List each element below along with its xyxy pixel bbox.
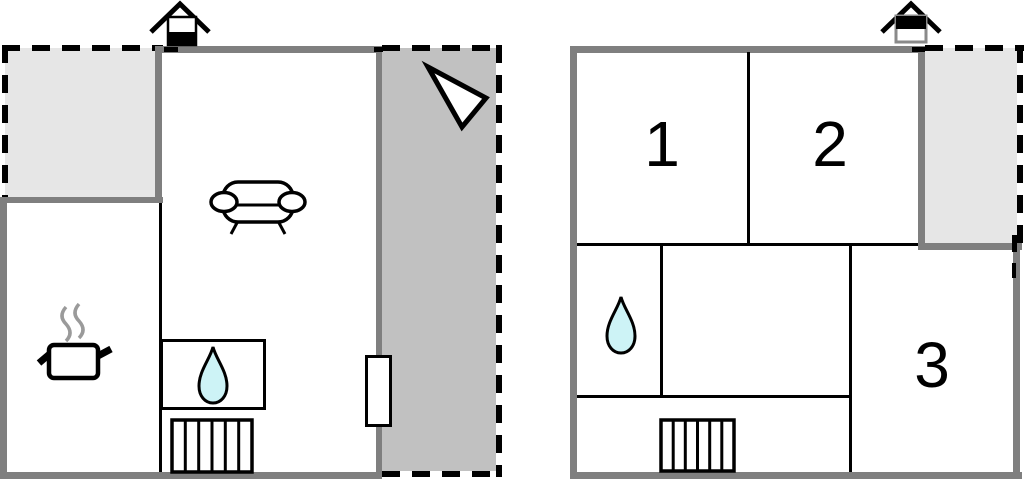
wall-under-terrace	[918, 243, 1022, 250]
dashed-border-top-left	[2, 45, 163, 51]
room-label-3: 3	[852, 333, 1012, 397]
wall-left	[570, 46, 577, 479]
sofa-armrest-left	[211, 193, 237, 212]
north-arrow-icon	[418, 58, 490, 134]
terrace-area-right-plan	[925, 48, 1017, 244]
dashed-border-right	[1017, 45, 1023, 251]
chimney-body-dark	[896, 16, 926, 29]
chimney-icon	[148, 0, 212, 50]
cooking-pot-icon	[30, 295, 120, 395]
wall-right-upper	[918, 46, 925, 250]
dashed-border-top-right	[382, 45, 502, 51]
wall-opening-mark	[1012, 235, 1017, 252]
water-drop-shape	[607, 297, 635, 353]
sofa-armrest-right	[279, 193, 305, 212]
wall-right-lower	[1013, 250, 1020, 479]
water-drop-icon	[196, 344, 230, 406]
water-drop-shape	[199, 347, 227, 403]
water-drop-icon	[604, 294, 638, 356]
interior-wall-kitchen	[159, 203, 162, 472]
door-icon	[365, 355, 392, 427]
stairs-icon	[659, 418, 736, 473]
north-arrow-shape	[428, 67, 486, 127]
dashed-border-left	[2, 45, 8, 203]
interior-wall-horizontal	[577, 243, 918, 246]
chimney-icon	[879, 0, 943, 50]
terrace-area-top-left	[5, 48, 157, 198]
wall-left-lower	[0, 197, 7, 479]
interior-wall-landing	[577, 395, 852, 398]
room-label-2: 2	[745, 112, 915, 176]
steam-line	[75, 304, 83, 338]
wall-right-of-terrace	[155, 48, 162, 200]
chimney-body-dark	[168, 32, 196, 45]
steam-line	[62, 307, 70, 341]
dashed-border-bottom-right	[382, 471, 502, 477]
wall-opening-mark	[1012, 263, 1016, 278]
sofa-icon	[198, 171, 318, 237]
interior-wall-bathroom	[660, 246, 663, 397]
floor-plan-canvas: 1 2 3	[0, 0, 1024, 481]
dashed-border-right	[496, 45, 502, 477]
wall-below-terrace	[2, 197, 163, 203]
wall-bottom	[570, 472, 1022, 479]
pot-body	[49, 345, 98, 378]
stairs-icon	[170, 418, 254, 474]
room-label-1: 1	[577, 112, 747, 176]
wall-accent-top-right	[374, 47, 383, 52]
